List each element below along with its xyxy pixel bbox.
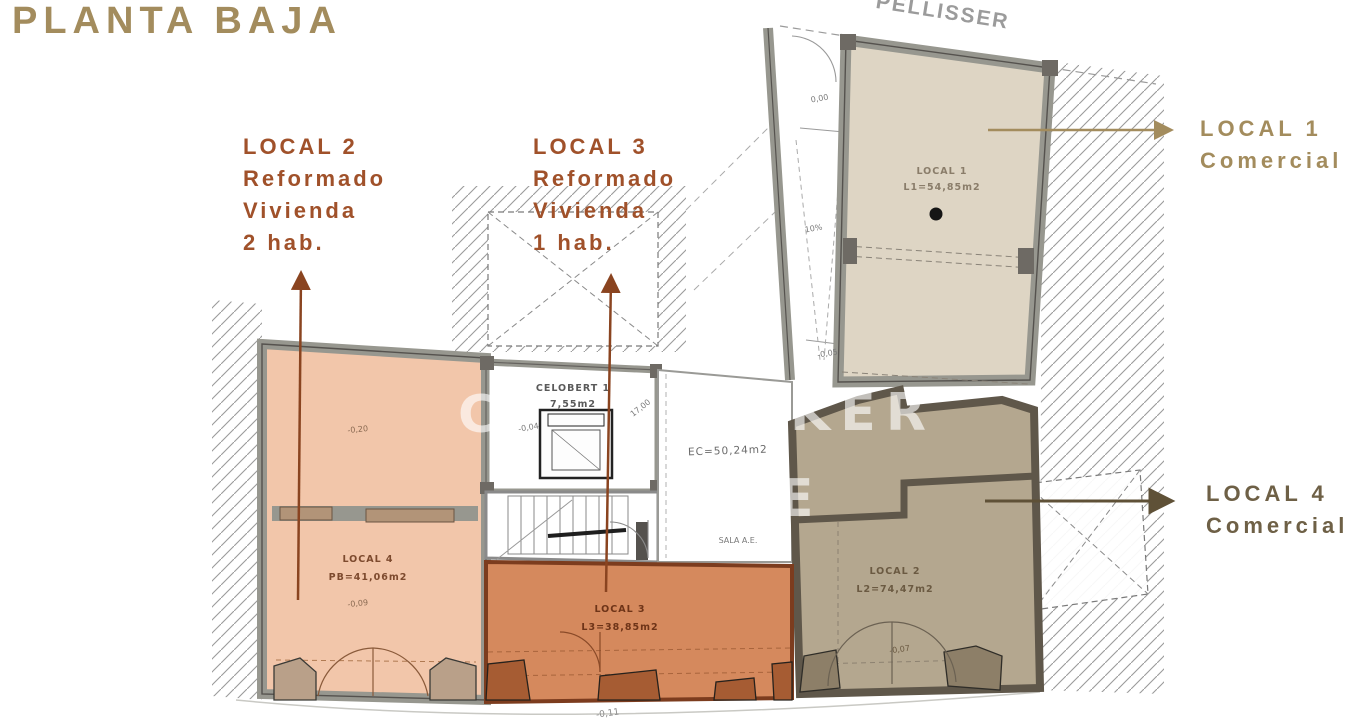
door-pier bbox=[944, 646, 1002, 690]
callout-local1-line: LOCAL 1 bbox=[1200, 113, 1342, 145]
callout-local3-line: 1 hab. bbox=[533, 227, 676, 259]
room-salmon bbox=[262, 344, 486, 700]
door-lintel bbox=[366, 509, 454, 522]
callout-local3: LOCAL 3 Reformado Vivienda 1 hab. bbox=[533, 131, 676, 259]
door-lintel bbox=[280, 507, 332, 520]
room-local1 bbox=[838, 34, 1058, 384]
celobert-name: CELOBERT 1 bbox=[536, 383, 610, 394]
callout-local4: LOCAL 4 Comercial bbox=[1206, 478, 1348, 542]
callout-local2-line: LOCAL 2 bbox=[243, 131, 386, 163]
watermark-fragment: E bbox=[778, 469, 824, 529]
door-pier bbox=[430, 658, 476, 700]
brown-room-area: L2=74,47m2 bbox=[856, 584, 933, 595]
door-pier bbox=[800, 650, 840, 692]
callout-local1: LOCAL 1 Comercial bbox=[1200, 113, 1342, 177]
callout-local3-line: Reformado bbox=[533, 163, 676, 195]
door-pier bbox=[714, 678, 756, 700]
beige-room-name: LOCAL 1 bbox=[916, 166, 967, 177]
watermark-fragment: KER bbox=[790, 383, 936, 443]
door-pier bbox=[772, 662, 792, 700]
room-celobert bbox=[480, 356, 662, 494]
salmon-room-area: PB=41,06m2 bbox=[329, 572, 408, 583]
callout-local4-line: LOCAL 4 bbox=[1206, 478, 1348, 510]
sala-label: SALA A.E. bbox=[719, 536, 758, 545]
celobert-area: 7,55m2 bbox=[550, 399, 596, 410]
orange-room-name: LOCAL 3 bbox=[594, 604, 645, 615]
floor-plan-svg: C KER E CELOBERT 1 7,55m2 LOCAL 4 PB=41,… bbox=[0, 0, 1354, 727]
elevator bbox=[540, 410, 612, 478]
callout-local2: LOCAL 2 Reformado Vivienda 2 hab. bbox=[243, 131, 386, 259]
brown-room-name: LOCAL 2 bbox=[869, 566, 920, 577]
watermark-fragment: C bbox=[458, 385, 506, 445]
page-title: PLANTA BAJA bbox=[12, 0, 342, 43]
door-pier bbox=[636, 522, 648, 560]
orange-room-area: L3=38,85m2 bbox=[581, 622, 658, 633]
callout-local4-line: Comercial bbox=[1206, 510, 1348, 542]
callout-local2-line: 2 hab. bbox=[243, 227, 386, 259]
hatch-region-left bbox=[212, 300, 262, 700]
street-elev: -0,11 bbox=[595, 707, 619, 720]
door-pier bbox=[486, 660, 530, 700]
floor-plan-page: C KER E CELOBERT 1 7,55m2 LOCAL 4 PB=41,… bbox=[0, 0, 1354, 727]
callout-local2-line: Vivienda bbox=[243, 195, 386, 227]
callout-local3-line: LOCAL 3 bbox=[533, 131, 676, 163]
structural-column bbox=[930, 208, 943, 221]
callout-local2-line: Reformado bbox=[243, 163, 386, 195]
callout-local1-line: Comercial bbox=[1200, 145, 1342, 177]
callout-local3-line: Vivienda bbox=[533, 195, 676, 227]
staircase bbox=[486, 492, 658, 562]
beige-room-area: L1=54,85m2 bbox=[903, 182, 980, 193]
salmon-room-name: LOCAL 4 bbox=[342, 554, 393, 565]
corridor-common bbox=[658, 370, 792, 562]
